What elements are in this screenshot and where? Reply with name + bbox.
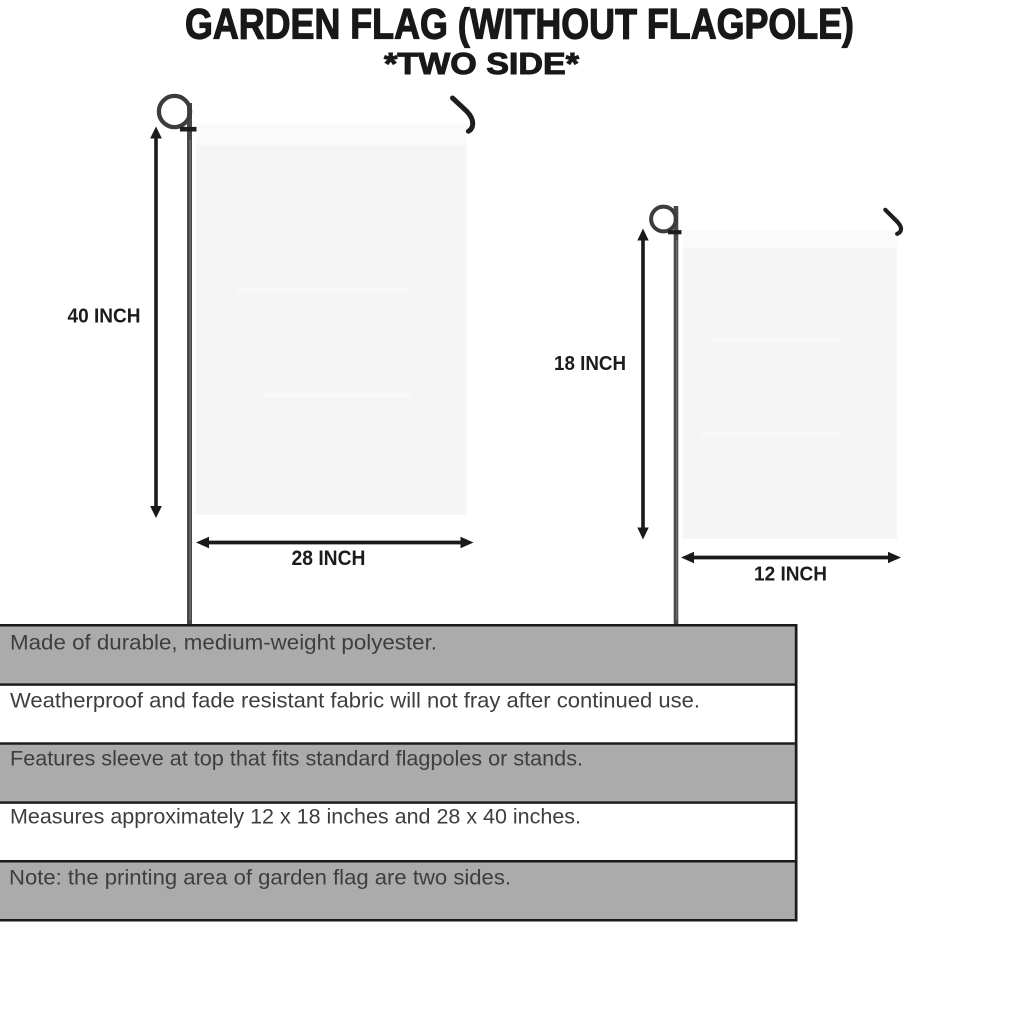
svg-text:GARDEN FLAG (WITHOUT FLAGPOLE): GARDEN FLAG (WITHOUT FLAGPOLE): [185, 2, 854, 49]
svg-text:12 INCH: 12 INCH: [754, 563, 827, 586]
svg-text:*TWO SIDE*: *TWO SIDE*: [384, 47, 579, 81]
svg-text:28 INCH: 28 INCH: [292, 547, 366, 570]
svg-text:Made of durable, medium-weight: Made of durable, medium-weight polyester…: [10, 631, 437, 655]
svg-text:Note: the printing area of gar: Note: the printing area of garden flag a…: [9, 866, 511, 890]
svg-text:Weatherproof and fade resistan: Weatherproof and fade resistant fabric w…: [10, 689, 700, 713]
svg-text:Features sleeve at top that fi: Features sleeve at top that fits standar…: [10, 747, 583, 771]
svg-text:18 INCH: 18 INCH: [554, 352, 626, 375]
svg-text:40 INCH: 40 INCH: [68, 305, 141, 328]
svg-text:Measures approximately 12 x 18: Measures approximately 12 x 18 inches an…: [10, 805, 581, 829]
